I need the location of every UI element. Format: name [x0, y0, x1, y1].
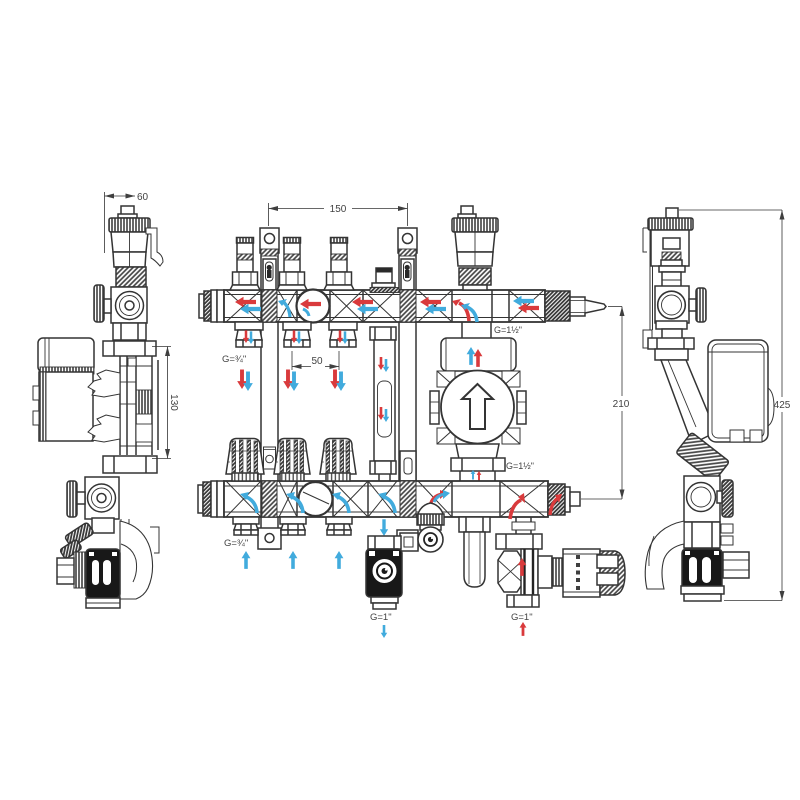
svg-text:G=1": G=1"	[370, 612, 392, 623]
svg-text:50: 50	[311, 356, 323, 367]
svg-text:150: 150	[330, 204, 347, 215]
svg-text:G=¾": G=¾"	[224, 538, 248, 549]
svg-text:G=1": G=1"	[511, 612, 533, 623]
svg-text:210: 210	[613, 399, 630, 410]
svg-text:G=¾": G=¾"	[222, 354, 246, 365]
svg-text:G=1½": G=1½"	[494, 325, 522, 335]
svg-text:60: 60	[137, 192, 149, 203]
svg-text:G=1½": G=1½"	[506, 461, 534, 471]
svg-text:425: 425	[774, 400, 791, 411]
svg-text:130: 130	[168, 394, 179, 411]
